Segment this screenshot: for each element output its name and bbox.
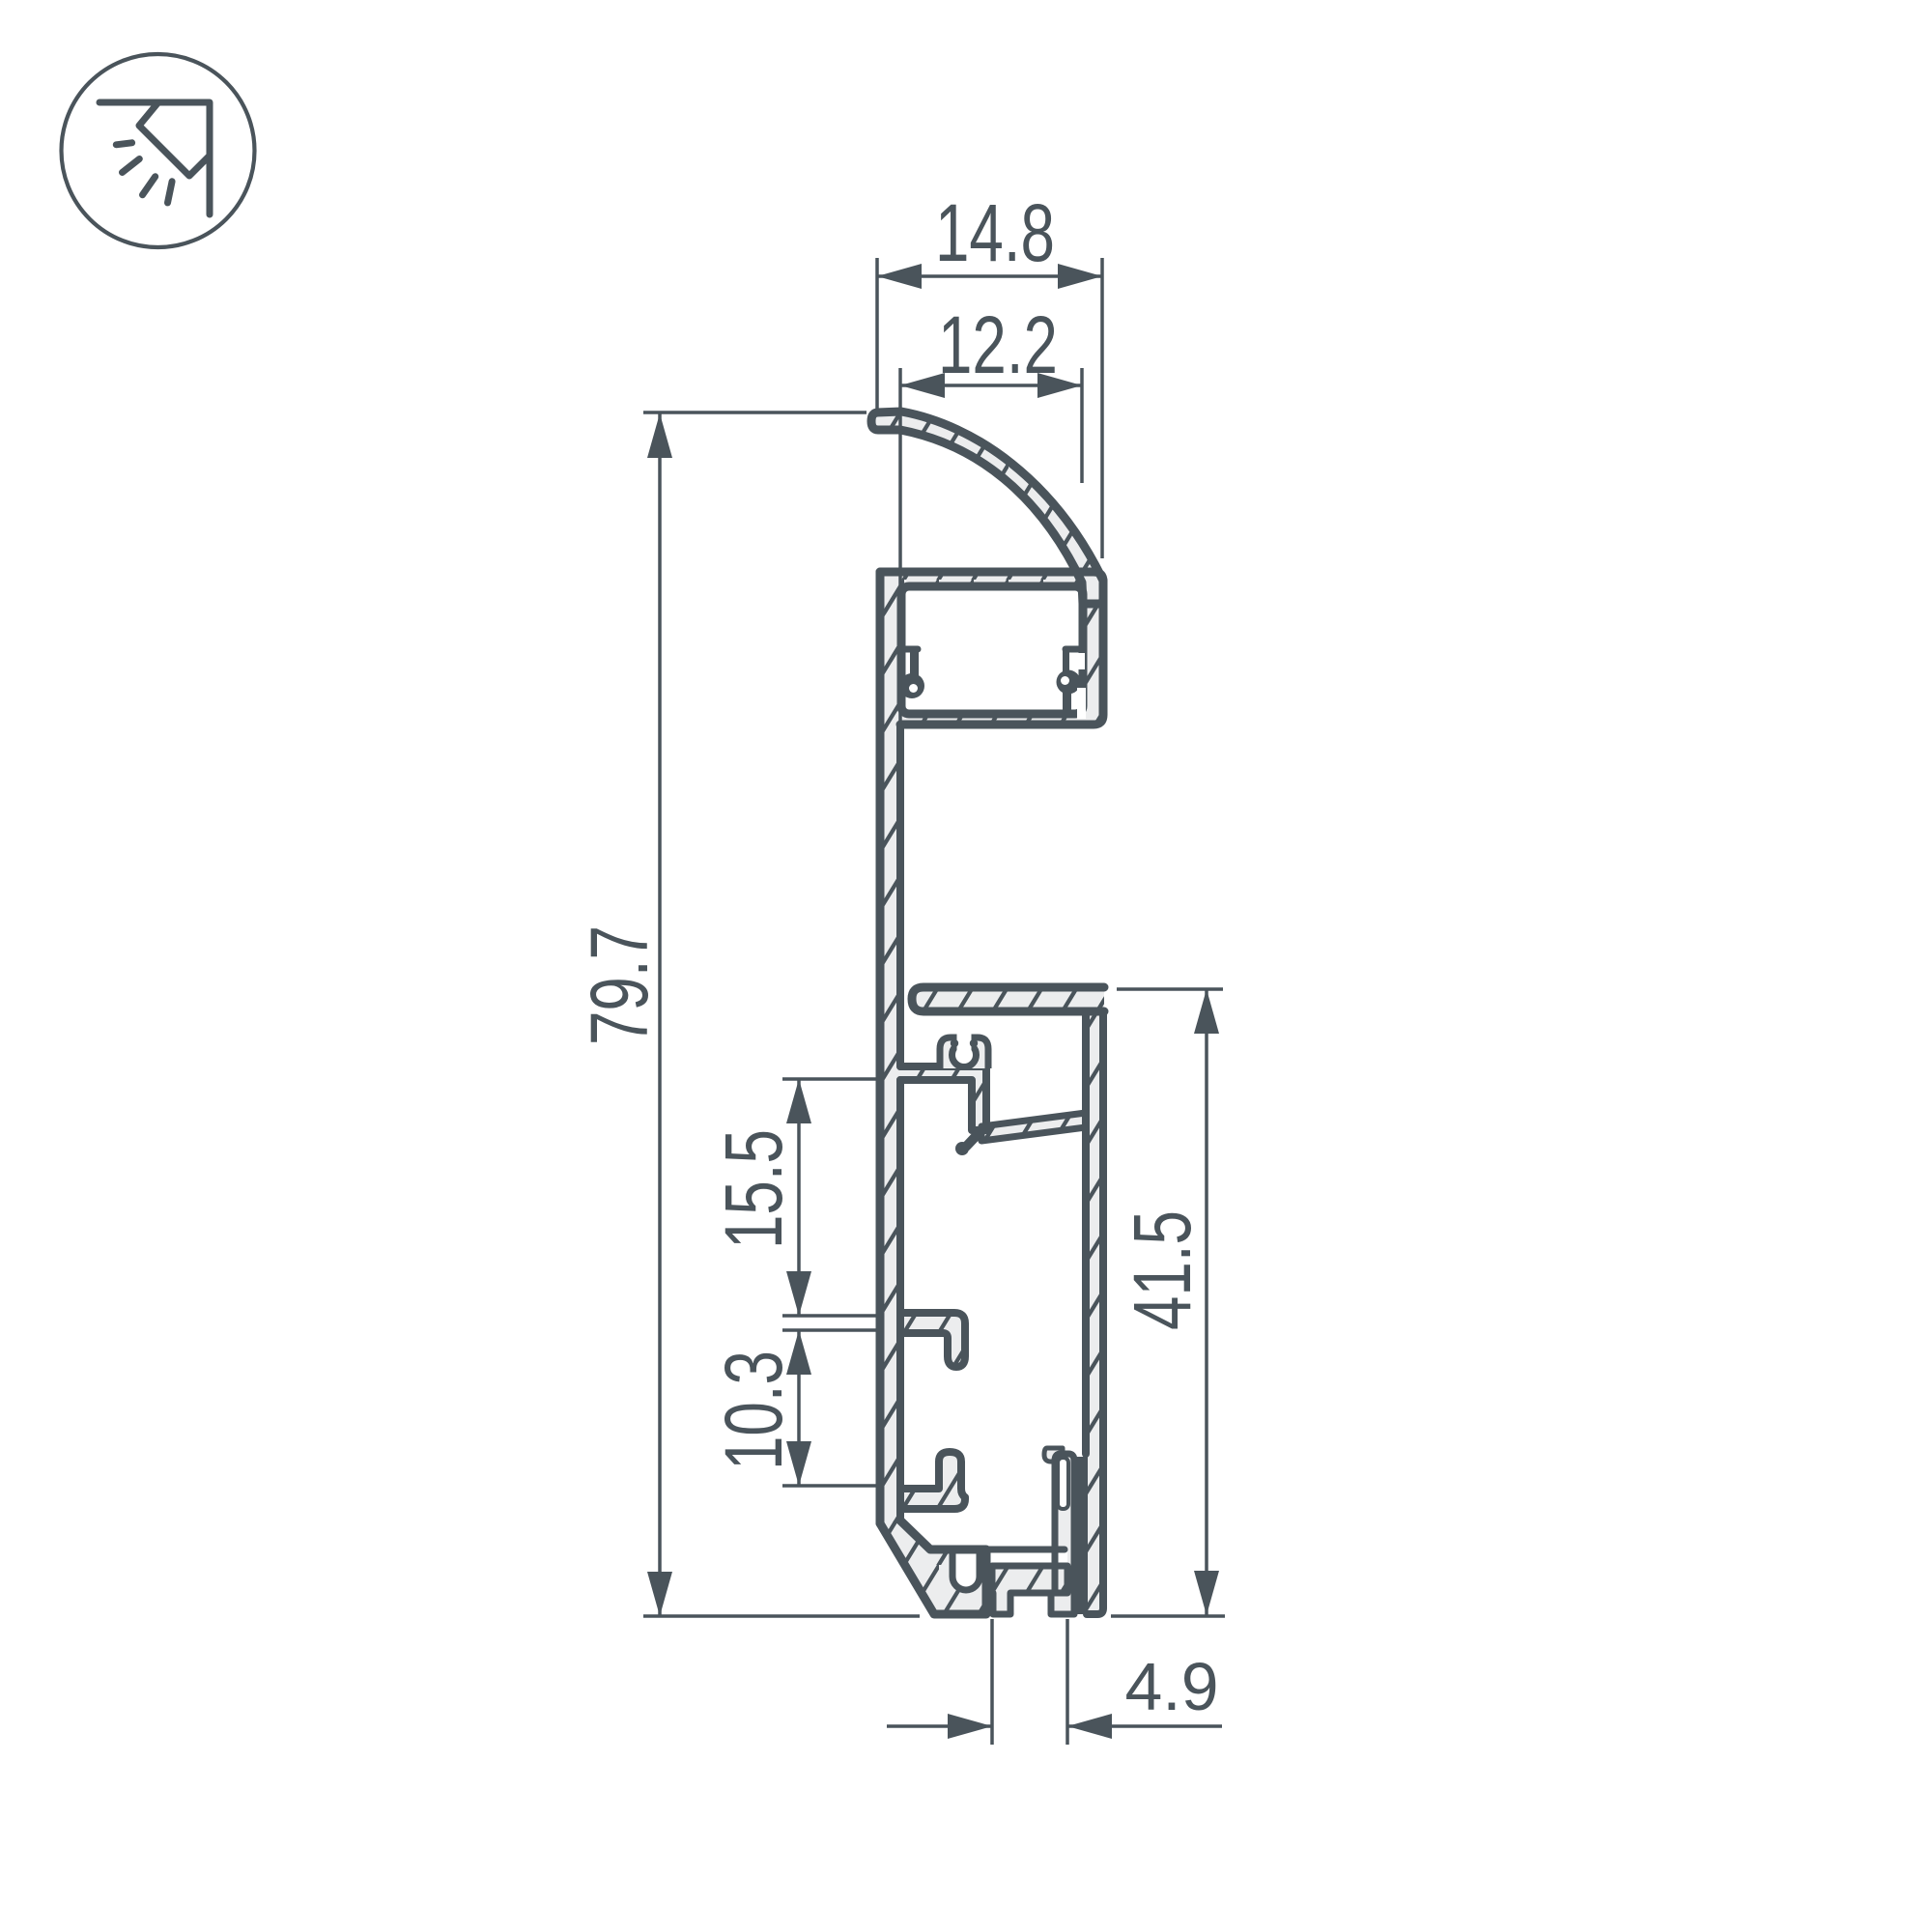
svg-text:79.7: 79.7 [574, 925, 665, 1045]
svg-text:41.5: 41.5 [1117, 1210, 1207, 1330]
svg-text:15.5: 15.5 [708, 1129, 799, 1249]
svg-text:10.3: 10.3 [708, 1350, 799, 1470]
svg-text:4.9: 4.9 [1125, 1649, 1219, 1724]
svg-text:14.8: 14.8 [935, 187, 1055, 278]
svg-text:12.2: 12.2 [938, 299, 1058, 390]
